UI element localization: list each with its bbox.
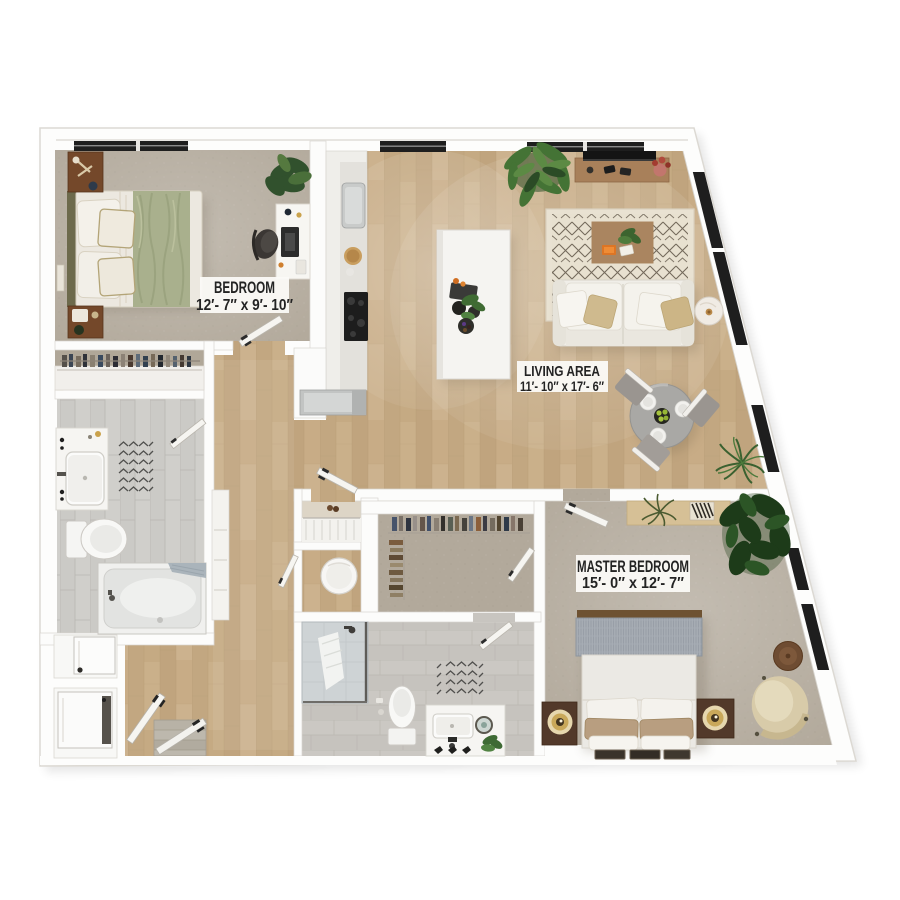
svg-text:11′- 10″ x 17′- 6″: 11′- 10″ x 17′- 6″	[520, 378, 604, 394]
svg-text:12′- 7″ x 9′- 10″: 12′- 7″ x 9′- 10″	[196, 297, 293, 314]
svg-text:BEDROOM: BEDROOM	[214, 278, 275, 297]
svg-text:15′- 0″ x 12′- 7″: 15′- 0″ x 12′- 7″	[582, 575, 684, 592]
svg-text:MASTER BEDROOM: MASTER BEDROOM	[577, 557, 689, 576]
